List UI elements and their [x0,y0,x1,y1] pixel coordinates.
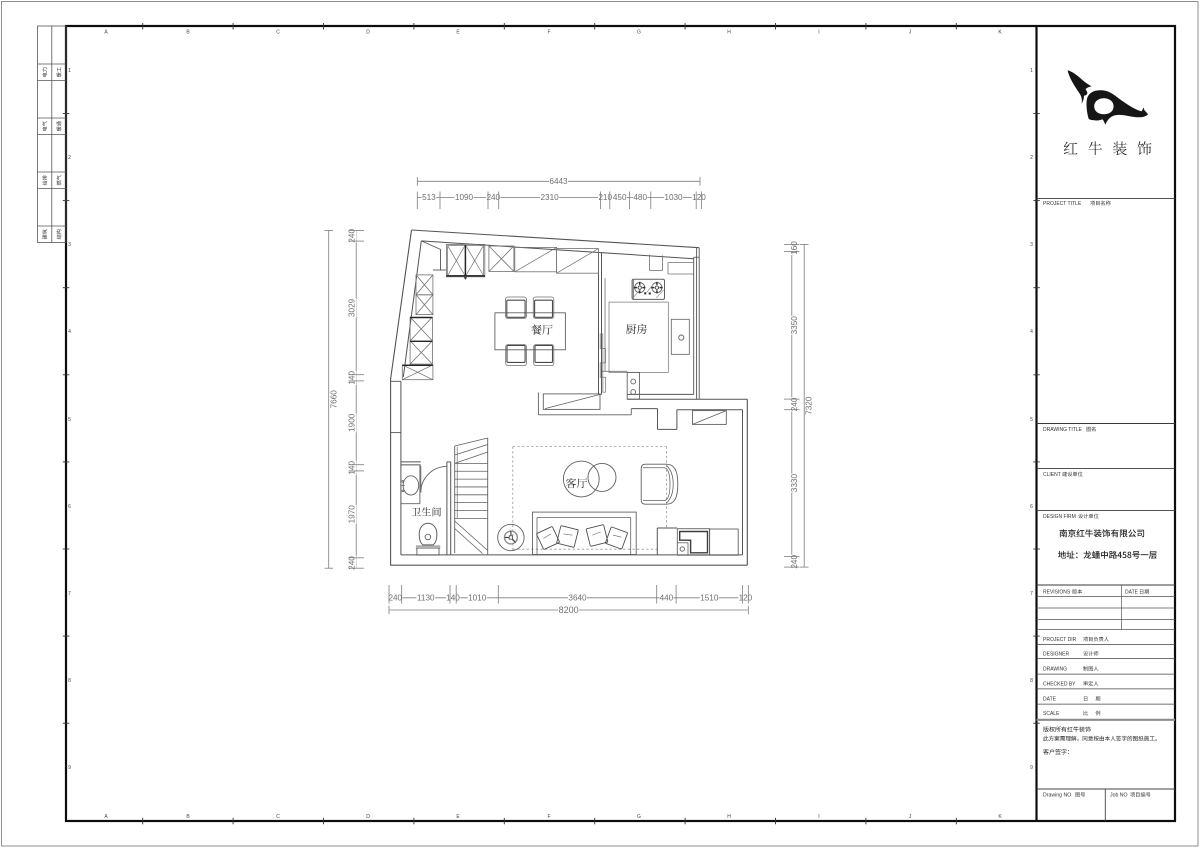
svg-text:Drawing NO: Drawing NO [1043,793,1071,799]
svg-text:140: 140 [446,594,460,603]
svg-text:DRAWING TITLE: DRAWING TITLE [1043,427,1083,433]
svg-text:7660: 7660 [330,390,339,409]
svg-text:DESIGNER: DESIGNER [1043,652,1070,658]
svg-text:3330: 3330 [790,474,799,493]
svg-text:4: 4 [1030,329,1033,335]
svg-text:8: 8 [68,678,71,684]
svg-text:7: 7 [1030,591,1033,597]
svg-text:REVISIONS: REVISIONS [1043,590,1071,596]
svg-text:DATE: DATE [1125,590,1139,596]
svg-text:8200: 8200 [559,605,579,615]
svg-text:1970: 1970 [348,505,357,524]
svg-text:5: 5 [1030,417,1033,423]
svg-text:140: 140 [348,461,357,475]
svg-text:H: H [727,814,731,820]
svg-text:DATE: DATE [1043,697,1057,703]
svg-text:H: H [727,30,731,36]
svg-text:1900: 1900 [348,413,357,432]
svg-text:7320: 7320 [805,396,814,415]
svg-text:6443: 6443 [549,177,568,186]
svg-text:F: F [547,814,550,820]
svg-text:480: 480 [633,193,647,202]
svg-text:2: 2 [68,155,71,161]
svg-text:160: 160 [790,241,799,255]
svg-text:2310: 2310 [540,193,559,202]
svg-text:D: D [366,814,370,820]
svg-text:1130: 1130 [417,594,435,603]
svg-text:9: 9 [1030,765,1033,771]
svg-text:5: 5 [68,417,71,423]
svg-text:DRAWING: DRAWING [1043,667,1067,673]
svg-text:D: D [366,30,370,36]
svg-text:C: C [276,814,280,820]
svg-text:1090: 1090 [455,193,474,202]
svg-text:3: 3 [1030,242,1033,248]
svg-text:CLIENT: CLIENT [1043,472,1061,478]
svg-text:F: F [547,30,550,36]
svg-text:2: 2 [1030,155,1033,161]
svg-text:1010: 1010 [468,594,487,603]
svg-text:1510: 1510 [700,594,719,603]
svg-text:I: I [818,814,819,820]
svg-text:3350: 3350 [790,316,799,335]
svg-text:4: 4 [68,329,71,335]
svg-text:SCALE: SCALE [1043,711,1060,717]
svg-text:120: 120 [739,594,753,603]
svg-text:440: 440 [660,594,674,603]
svg-text:120: 120 [692,193,706,202]
svg-text:240: 240 [388,594,402,603]
svg-text:CHECKED BY: CHECKED BY [1043,682,1076,688]
svg-text:513: 513 [422,193,436,202]
svg-text:PROJECT TITLE: PROJECT TITLE [1043,201,1082,207]
svg-text:Job NO: Job NO [1110,793,1128,799]
svg-text:G: G [637,30,641,36]
svg-text:8: 8 [1030,678,1033,684]
svg-text:6: 6 [68,504,71,510]
svg-text:450: 450 [613,193,627,202]
svg-text:140: 140 [348,371,357,385]
svg-text:3: 3 [68,242,71,248]
svg-text:6: 6 [1030,504,1033,510]
svg-text:1030: 1030 [664,193,683,202]
svg-text:7: 7 [68,591,71,597]
svg-text:DESIGN FIRM: DESIGN FIRM [1043,514,1076,520]
svg-text:PROJECT DIR: PROJECT DIR [1043,637,1077,643]
svg-text:1: 1 [68,68,71,74]
svg-text:1: 1 [1030,68,1033,74]
svg-text:3029: 3029 [348,298,357,317]
svg-text:I: I [818,30,819,36]
svg-text:3640: 3640 [568,594,587,603]
svg-text:G: G [637,814,641,820]
svg-text:C: C [276,30,280,36]
svg-text:9: 9 [68,765,71,771]
